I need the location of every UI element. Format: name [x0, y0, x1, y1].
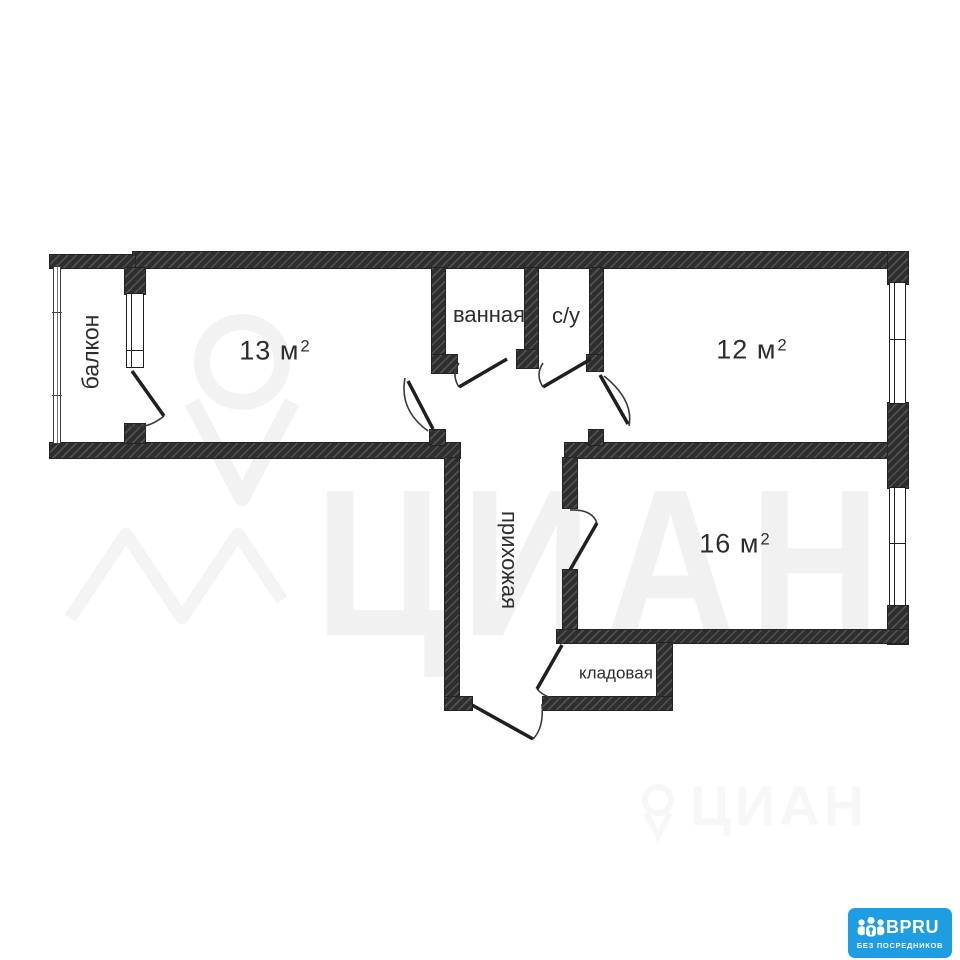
hallway-label: прихожая — [498, 511, 520, 609]
floor-plan: ЦИАН ЦИАН — [0, 0, 960, 960]
room13-area-value: 13 м — [239, 336, 299, 366]
wc-label: с/у — [552, 305, 580, 327]
room16-area-label: 16 м2 — [699, 531, 770, 558]
bpru-logo-badge: BPRU БЕЗ ПОСРЕДНИКОВ — [848, 908, 952, 958]
bpru-brand-text: BPRU — [886, 917, 939, 938]
people-key-icon — [855, 914, 887, 940]
storage-label: кладовая — [579, 665, 653, 682]
bpru-tagline-text: БЕЗ ПОСРЕДНИКОВ — [848, 941, 952, 950]
room13-area-label: 13 м2 — [239, 338, 310, 365]
room12-area-value: 12 м — [716, 335, 776, 365]
balcony-label: балкон — [80, 315, 103, 390]
room16-area-sup: 2 — [760, 529, 770, 548]
room12-area-label: 12 м2 — [716, 337, 787, 364]
room16-area-value: 16 м — [699, 529, 759, 559]
bathroom-label: ванная — [453, 304, 525, 326]
room12-area-sup: 2 — [777, 335, 787, 354]
room13-area-sup: 2 — [300, 336, 310, 355]
labels-layer: балкон 13 м2 ванная с/у 12 м2 прихожая 1… — [0, 0, 960, 960]
